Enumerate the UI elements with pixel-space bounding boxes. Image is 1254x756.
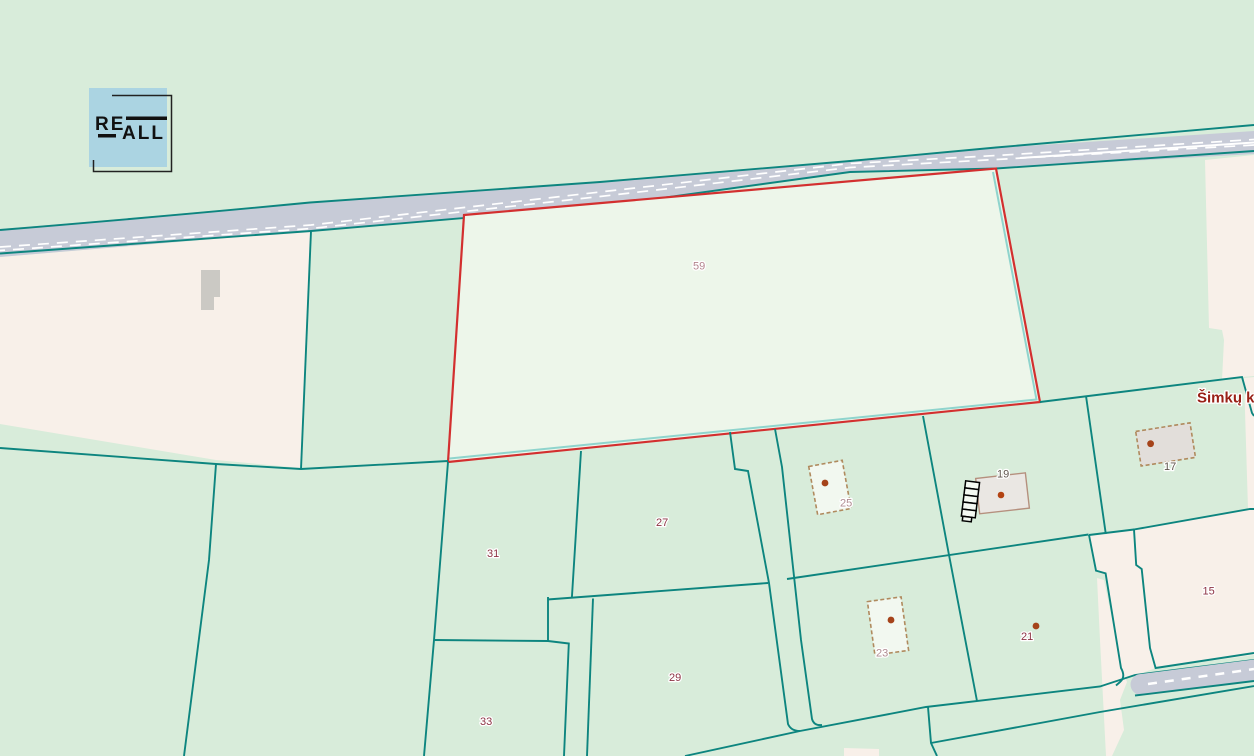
svg-text:59: 59 — [693, 261, 705, 273]
svg-text:19: 19 — [997, 469, 1009, 481]
svg-text:17: 17 — [1164, 461, 1176, 473]
svg-text:ALL: ALL — [122, 123, 165, 144]
svg-text:RE: RE — [95, 114, 125, 135]
svg-text:23: 23 — [876, 648, 888, 660]
svg-text:21: 21 — [1021, 631, 1033, 643]
svg-text:31: 31 — [487, 548, 499, 560]
svg-text:25: 25 — [840, 498, 852, 510]
svg-text:29: 29 — [669, 672, 681, 684]
svg-text:27: 27 — [656, 517, 668, 529]
svg-text:15: 15 — [1203, 586, 1215, 598]
svg-text:Šimkų k.: Šimkų k. — [1197, 389, 1254, 407]
svg-text:33: 33 — [480, 716, 492, 728]
